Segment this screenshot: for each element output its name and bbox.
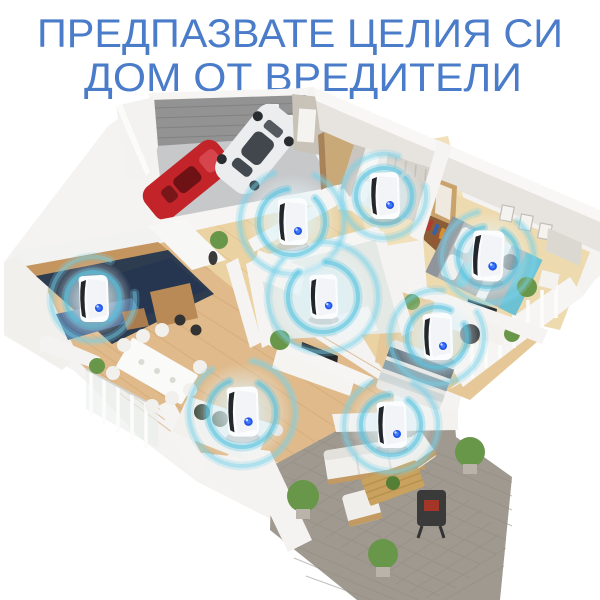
svg-text:ПРЕДПАЗВАТЕ ЦЕЛИЯ СИ: ПРЕДПАЗВАТЕ ЦЕЛИЯ СИ [37,12,563,56]
